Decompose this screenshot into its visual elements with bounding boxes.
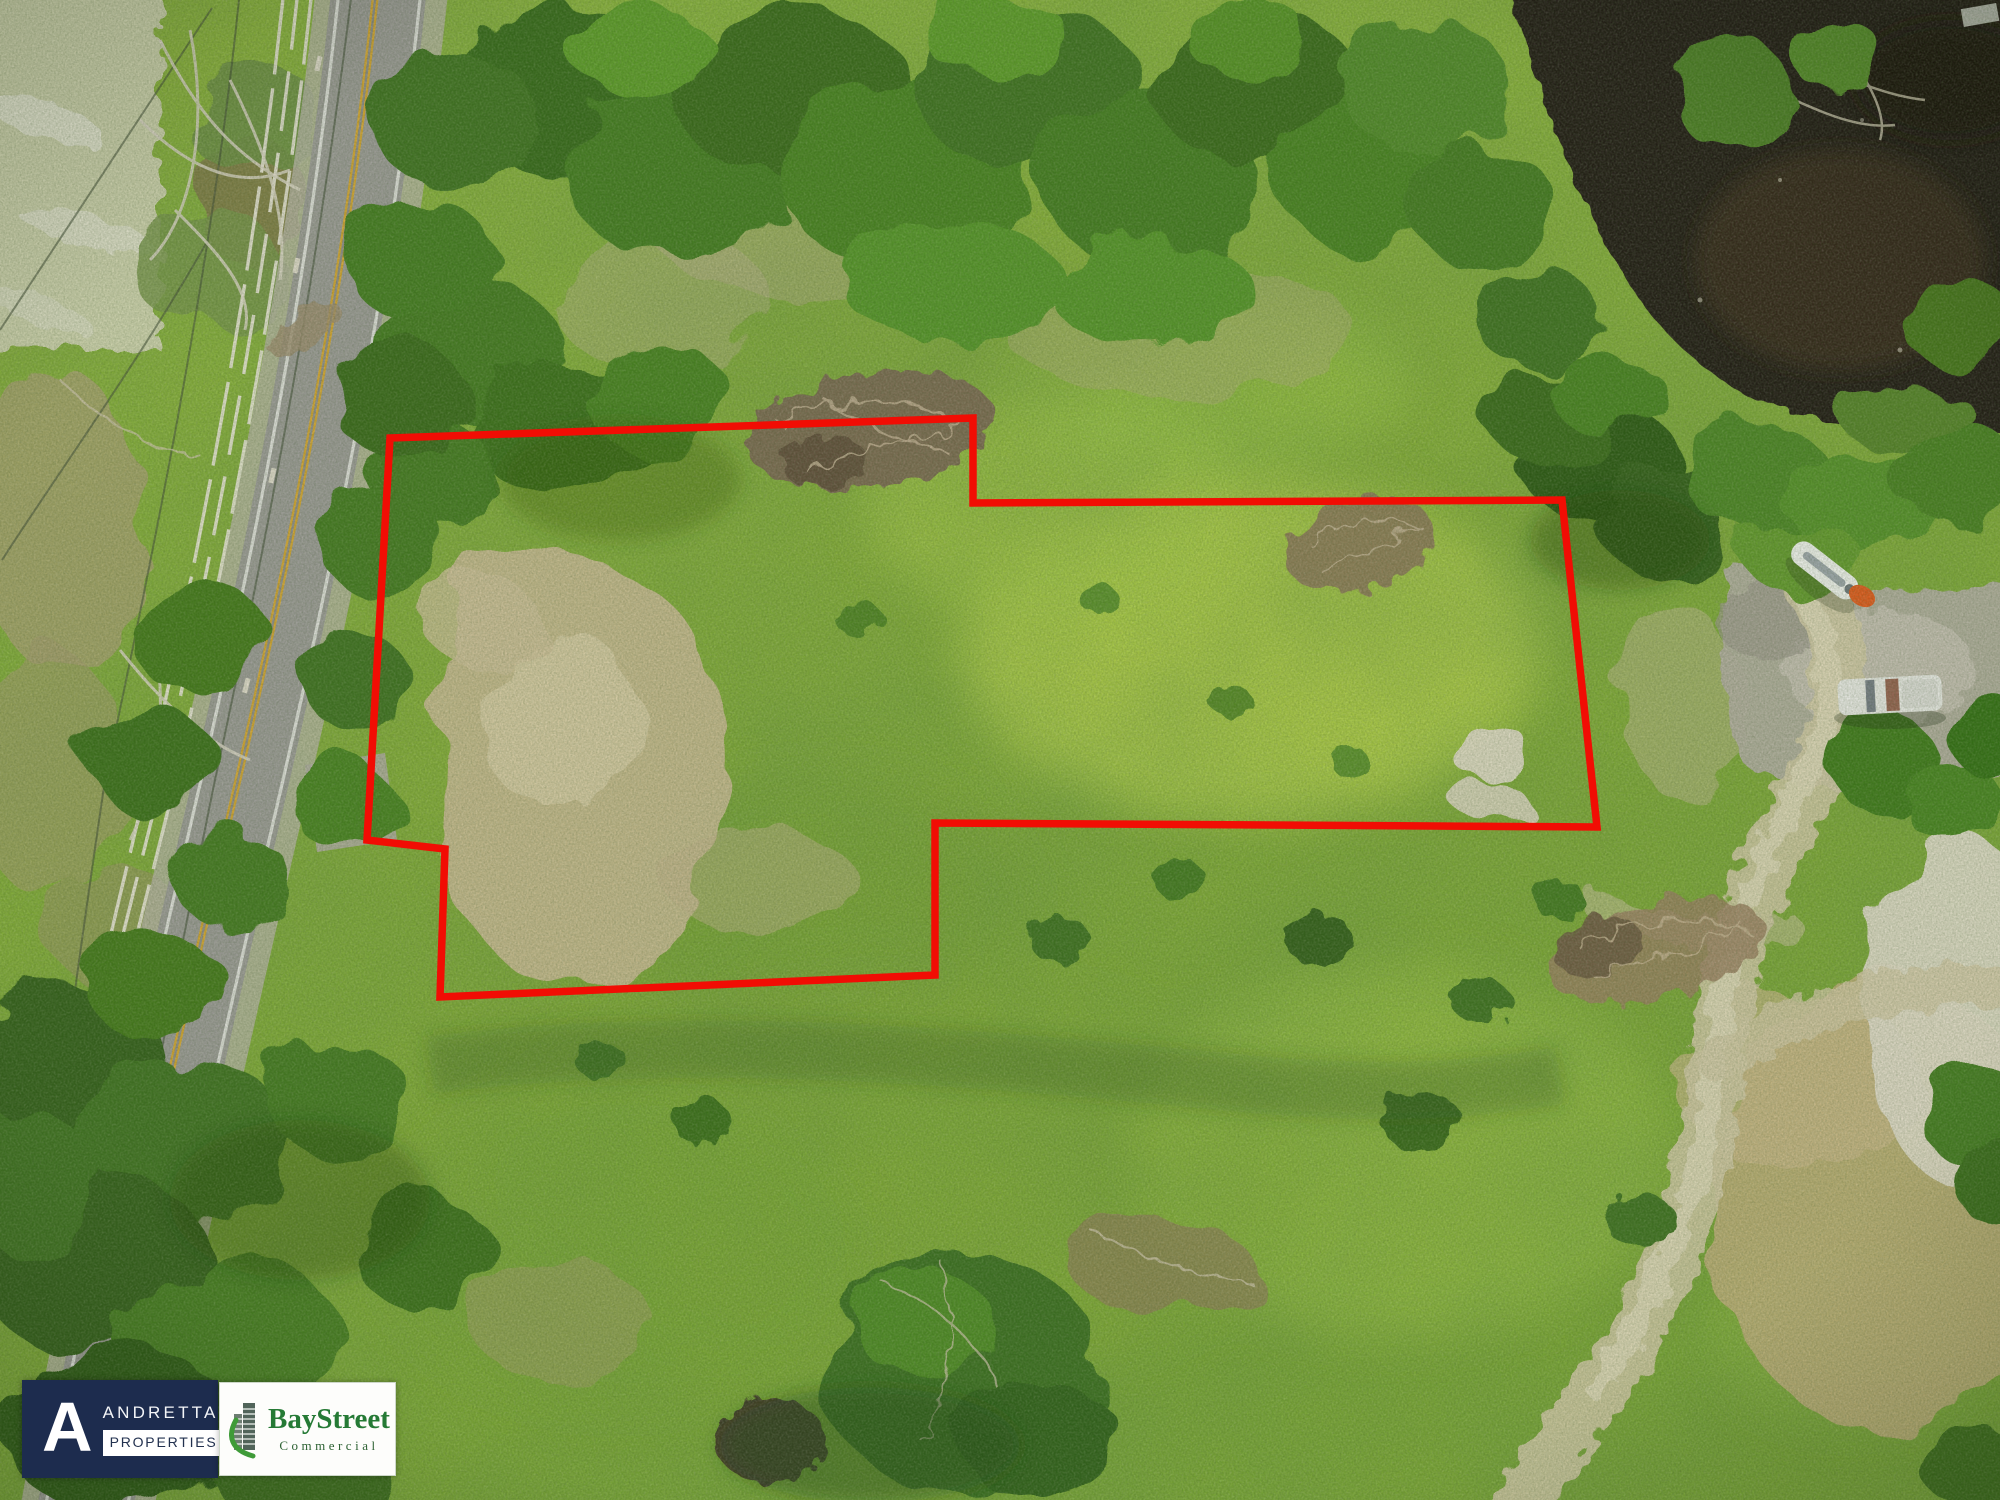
baystreet-division: Commercial bbox=[279, 1438, 378, 1454]
vignette bbox=[0, 0, 2000, 1500]
andretta-properties-logo: A ANDRETTA PROPERTIES bbox=[22, 1380, 218, 1478]
baystreet-name: BayStreet bbox=[268, 1405, 390, 1434]
andretta-monogram: A bbox=[42, 1392, 91, 1462]
andretta-division: PROPERTIES bbox=[110, 1434, 218, 1450]
aerial-photo: A ANDRETTA PROPERTIES BayStreet Commerci… bbox=[0, 0, 2000, 1500]
andretta-division-box: PROPERTIES bbox=[103, 1430, 225, 1456]
aerial-photo-canvas bbox=[0, 0, 2000, 1500]
baystreet-building-icon bbox=[229, 1398, 261, 1460]
baystreet-commercial-logo: BayStreet Commercial bbox=[219, 1382, 396, 1476]
andretta-name: ANDRETTA bbox=[103, 1403, 219, 1423]
